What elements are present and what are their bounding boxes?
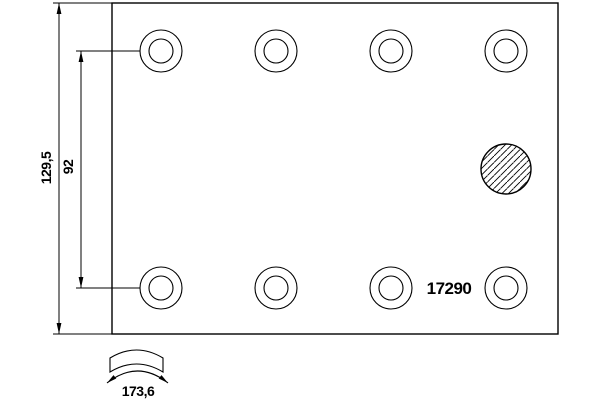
drawing-page: 17290 129,5 92 <box>0 0 600 400</box>
arrowhead-up-icon <box>79 51 84 62</box>
dimension-label-arc-width: 173,6 <box>122 383 155 399</box>
arc-profile-band <box>110 350 163 372</box>
wear-indicator-hole <box>481 144 531 194</box>
part-number-label: 17290 <box>427 279 472 298</box>
arc-profile-symbol <box>107 350 168 383</box>
arrowhead-left-icon <box>107 375 116 383</box>
arrowhead-up-icon <box>57 3 62 14</box>
technical-drawing-canvas: 17290 129,5 92 <box>0 0 600 400</box>
dimension-label-hole-row-spacing: 92 <box>60 159 76 174</box>
arrowhead-down-icon <box>79 277 84 288</box>
dimension-label-overall-height: 129,5 <box>38 151 54 184</box>
arrowhead-right-icon <box>159 375 168 383</box>
arrowhead-down-icon <box>57 323 62 334</box>
dimension-arc-width <box>107 371 168 383</box>
